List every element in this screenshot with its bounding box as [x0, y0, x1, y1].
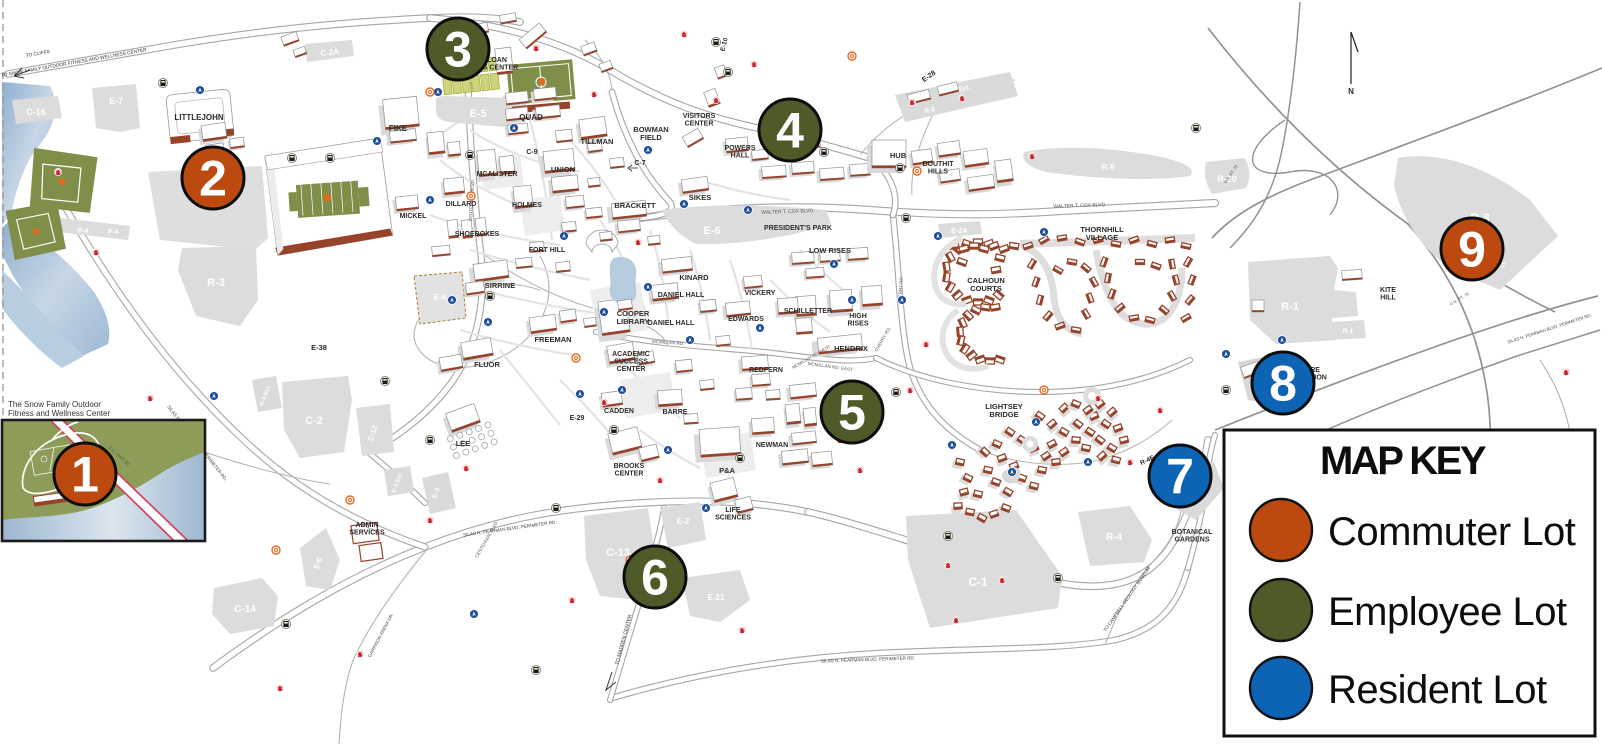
svg-text:LITTLEJOHN: LITTLEJOHN — [174, 113, 224, 122]
svg-text:C-7: C-7 — [634, 160, 645, 167]
svg-text:SCHILLETTER: SCHILLETTER — [784, 308, 832, 315]
svg-text:E-21: E-21 — [708, 593, 725, 602]
svg-text:SIRRINE: SIRRINE — [485, 281, 515, 290]
svg-text:PRESIDENT’S PARK: PRESIDENT’S PARK — [764, 225, 832, 232]
svg-text:C-2: C-2 — [305, 415, 323, 427]
svg-text:DANIEL HALL: DANIEL HALL — [658, 292, 705, 299]
svg-text:DOUTHIT: DOUTHIT — [922, 161, 954, 168]
svg-text:FORT HILL: FORT HILL — [529, 247, 566, 254]
svg-text:E-7: E-7 — [109, 96, 123, 106]
svg-text:ADMIN: ADMIN — [356, 522, 379, 529]
svg-text:R-4: R-4 — [1106, 532, 1123, 543]
svg-text:HILL: HILL — [1380, 295, 1396, 302]
svg-text:TILLMAN: TILLMAN — [581, 137, 614, 146]
svg-text:QUAD: QUAD — [519, 113, 543, 122]
svg-text:CENTER: CENTER — [617, 366, 646, 373]
svg-text:N: N — [1348, 87, 1354, 96]
svg-text:9: 9 — [1458, 222, 1486, 278]
svg-text:E-38: E-38 — [311, 343, 327, 352]
svg-text:SHOEBOXES: SHOEBOXES — [455, 231, 500, 238]
svg-text:MCALISTER: MCALISTER — [477, 171, 518, 178]
svg-text:FREEMAN: FREEMAN — [534, 335, 571, 344]
svg-text:Commuter Lot: Commuter Lot — [1328, 510, 1576, 554]
svg-text:EDWARDS: EDWARDS — [728, 316, 764, 323]
svg-text:C-14: C-14 — [234, 604, 256, 615]
svg-text:6: 6 — [641, 550, 669, 606]
svg-text:P&A: P&A — [719, 466, 735, 475]
svg-text:Resident Lot: Resident Lot — [1328, 668, 1547, 712]
svg-text:The Snow Family Outdoor: The Snow Family Outdoor — [8, 400, 101, 409]
svg-text:E-6: E-6 — [703, 225, 720, 237]
svg-text:CADDEN: CADDEN — [604, 408, 634, 415]
svg-text:C-16: C-16 — [26, 107, 46, 117]
svg-text:VICKERY: VICKERY — [745, 290, 776, 297]
svg-text:R-1: R-1 — [1281, 301, 1299, 313]
svg-text:Employee Lot: Employee Lot — [1328, 590, 1567, 634]
svg-text:FIELD: FIELD — [640, 133, 662, 142]
svg-text:E-5: E-5 — [469, 108, 486, 120]
svg-text:HOLMES: HOLMES — [512, 202, 542, 209]
svg-text:CENTER: CENTER — [615, 471, 644, 478]
svg-text:VILLAGE: VILLAGE — [1086, 233, 1119, 242]
svg-text:LOAN: LOAN — [487, 57, 507, 64]
svg-text:C-1: C-1 — [968, 575, 988, 589]
svg-text:3: 3 — [444, 22, 472, 78]
svg-text:SERVICES: SERVICES — [349, 530, 385, 537]
svg-text:ACADEMIC: ACADEMIC — [612, 351, 650, 358]
svg-text:KINARD: KINARD — [679, 273, 709, 282]
svg-text:SUCCESS: SUCCESS — [614, 359, 648, 366]
svg-text:LEE: LEE — [456, 439, 471, 448]
svg-text:R-3: R-3 — [207, 277, 225, 289]
svg-text:UNION: UNION — [551, 165, 575, 174]
svg-text:HENDRIX: HENDRIX — [834, 344, 868, 353]
svg-text:LIFE: LIFE — [725, 507, 740, 514]
svg-text:DANIEL HALL: DANIEL HALL — [648, 320, 695, 327]
svg-text:E-24: E-24 — [951, 226, 968, 235]
svg-text:C-9: C-9 — [526, 149, 537, 156]
svg-text:8: 8 — [1269, 356, 1297, 412]
svg-text:2: 2 — [199, 151, 227, 207]
svg-text:COURTS: COURTS — [970, 284, 1002, 293]
svg-text:KITE: KITE — [1380, 287, 1396, 294]
svg-text:R-9: R-9 — [1102, 163, 1115, 172]
svg-text:CENTER: CENTER — [685, 121, 714, 128]
svg-text:4: 4 — [776, 103, 804, 159]
svg-text:MICKEL: MICKEL — [400, 213, 428, 220]
svg-text:SCIENCES: SCIENCES — [715, 515, 751, 522]
svg-text:SIKES: SIKES — [689, 193, 712, 202]
svg-text:HIGH: HIGH — [849, 313, 867, 320]
svg-text:BOTANICAL: BOTANICAL — [1172, 529, 1213, 536]
svg-text:E-29: E-29 — [570, 415, 585, 422]
svg-text:P-4: P-4 — [108, 229, 119, 236]
svg-text:LIBRARY: LIBRARY — [616, 317, 649, 326]
svg-text:FLUOR: FLUOR — [474, 360, 500, 369]
svg-text:R-1: R-1 — [1343, 328, 1354, 335]
svg-text:HILLS: HILLS — [928, 169, 949, 176]
svg-text:BROOKS: BROOKS — [614, 463, 645, 470]
svg-text:NEWMAN: NEWMAN — [756, 442, 788, 449]
svg-text:1: 1 — [71, 447, 99, 503]
svg-text:P-4: P-4 — [78, 228, 89, 235]
svg-text:E-2: E-2 — [677, 517, 690, 526]
svg-text:HUB: HUB — [890, 151, 907, 160]
svg-text:REDFERN: REDFERN — [749, 367, 783, 374]
svg-text:HALL: HALL — [731, 153, 750, 160]
svg-text:GARDENS: GARDENS — [1174, 537, 1209, 544]
svg-text:FIKE: FIKE — [389, 124, 408, 133]
svg-text:BRACKETT: BRACKETT — [614, 201, 656, 210]
svg-text:BRIDGE: BRIDGE — [989, 410, 1018, 419]
svg-text:RISES: RISES — [847, 321, 868, 328]
svg-text:VISITORS: VISITORS — [683, 113, 716, 120]
svg-text:7: 7 — [1166, 449, 1194, 505]
svg-text:Fitness and Wellness Center: Fitness and Wellness Center — [8, 409, 110, 418]
svg-text:5: 5 — [838, 385, 866, 441]
svg-text:POWERS: POWERS — [724, 145, 755, 152]
svg-text:LOW RISES: LOW RISES — [809, 246, 851, 255]
svg-text:MAP KEY: MAP KEY — [1320, 439, 1487, 483]
svg-text:E-4: E-4 — [434, 293, 447, 302]
